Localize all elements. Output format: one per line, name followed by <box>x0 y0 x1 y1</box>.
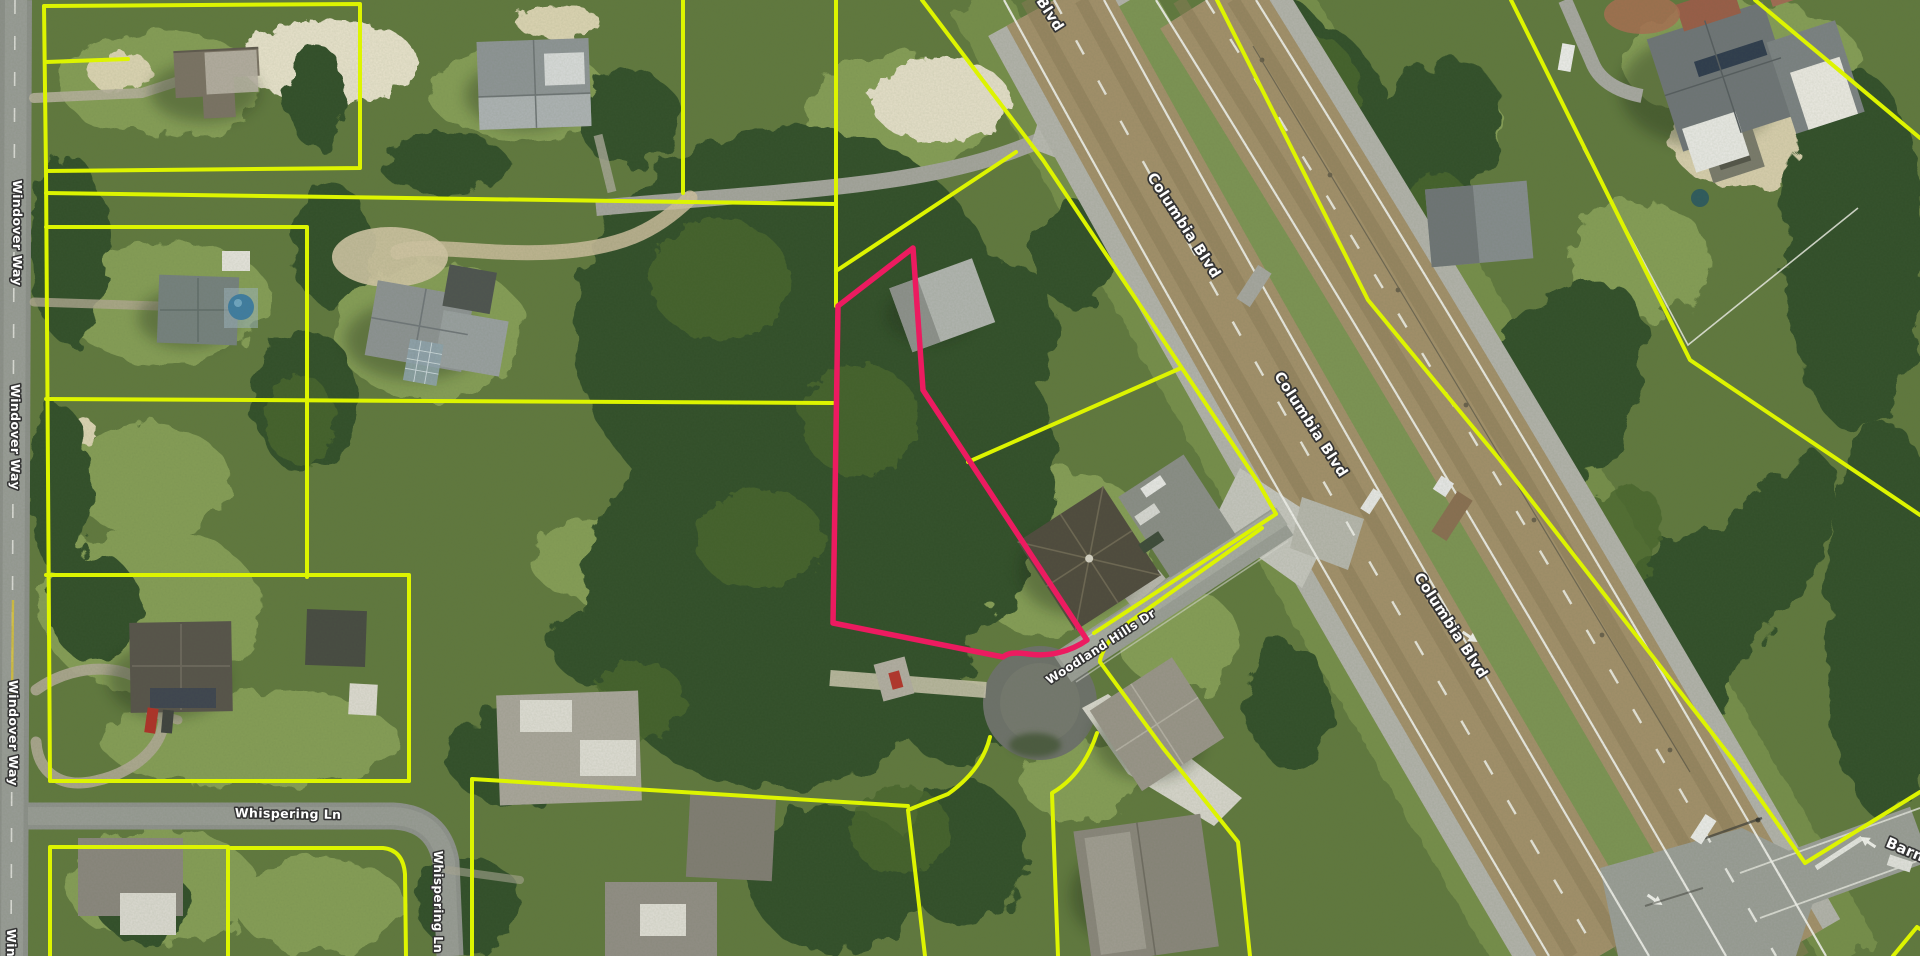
street-label-whispering-ln-2: Whispering Ln <box>431 851 445 954</box>
street-label-whispering-ln-1: Whispering Ln <box>235 805 342 822</box>
street-label-windover-way-2: Windover Way <box>8 384 23 490</box>
street-label-windover-way-1: Windover Way <box>10 180 25 286</box>
street-label-windover-way-partial: Windover Way <box>4 929 19 956</box>
map-canvas: Columbia Blvd Columbia Blvd Columbia Blv… <box>0 0 1920 956</box>
aerial-map: Columbia Blvd Columbia Blvd Columbia Blv… <box>0 0 1920 956</box>
street-label-windover-way-3: Windover Way <box>6 680 21 786</box>
